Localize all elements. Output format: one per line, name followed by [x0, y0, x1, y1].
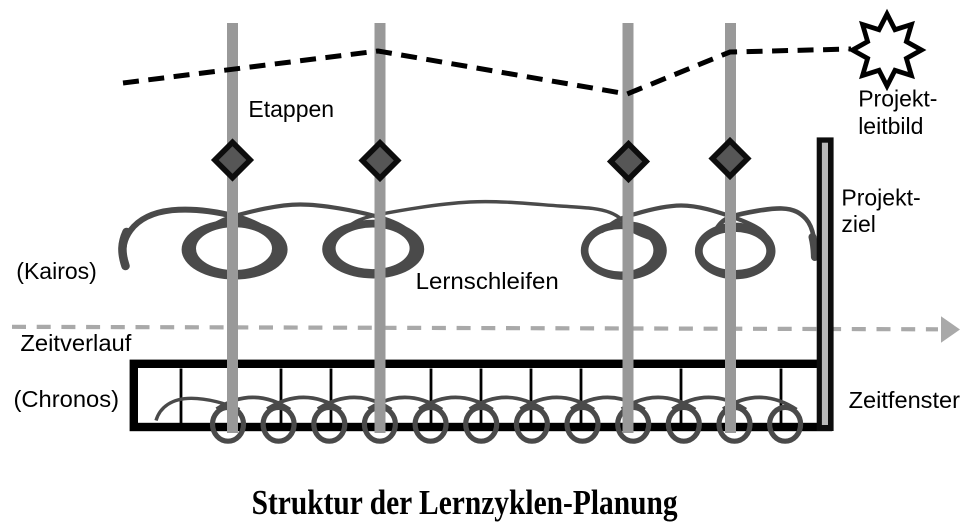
- svg-text:leitbild: leitbild: [858, 113, 923, 139]
- svg-text:(Chronos): (Chronos): [14, 386, 120, 412]
- svg-text:Etappen: Etappen: [248, 96, 334, 122]
- svg-text:(Kairos): (Kairos): [16, 258, 97, 284]
- svg-text:Zeitverlauf: Zeitverlauf: [20, 330, 132, 356]
- svg-text:ziel: ziel: [841, 211, 876, 237]
- svg-text:Struktur der Lernzyklen-Planun: Struktur der Lernzyklen-Planung: [252, 483, 678, 522]
- svg-text:Lernschleifen: Lernschleifen: [416, 268, 559, 294]
- svg-text:Projekt-: Projekt-: [841, 185, 920, 211]
- svg-text:Projekt-: Projekt-: [858, 86, 937, 112]
- svg-text:Zeitfenster: Zeitfenster: [849, 387, 961, 413]
